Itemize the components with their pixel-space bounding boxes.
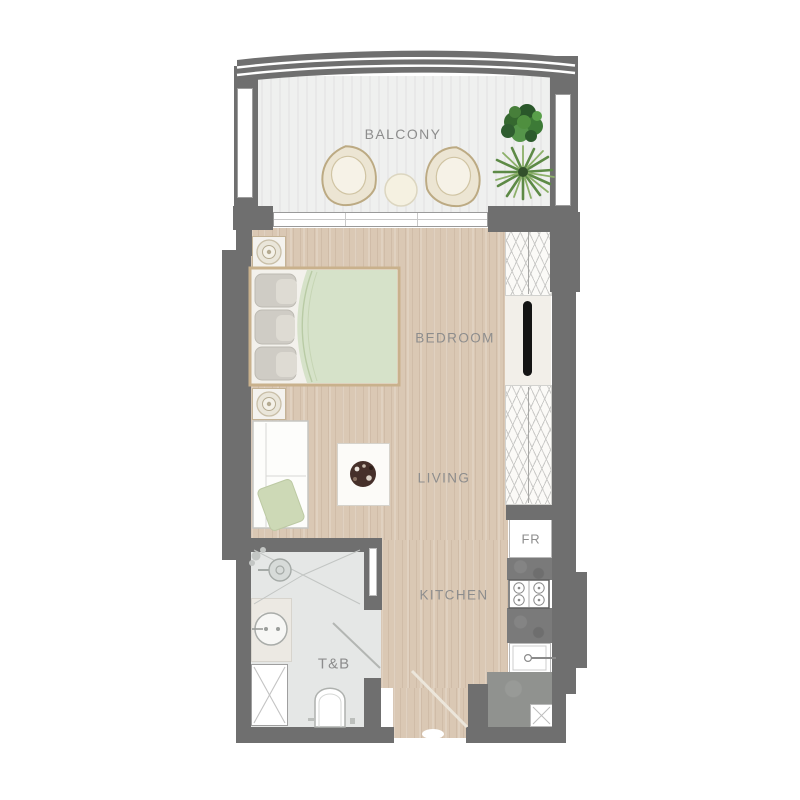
sliding-door-divider-2 <box>417 213 418 226</box>
service-shaft <box>251 664 288 726</box>
tb-north-wall <box>251 538 382 552</box>
floor-plan: BALCONY BEDROOM LIVING KITCHEN T&B FR <box>0 0 800 800</box>
nightstand-north <box>252 236 286 268</box>
kitchen-counter-2 <box>507 608 552 643</box>
east-wall-upper <box>550 212 580 292</box>
kitchen-counter-1 <box>507 558 552 580</box>
utility-box <box>530 704 553 727</box>
sliding-door-track <box>274 219 487 220</box>
west-pilaster <box>222 250 251 560</box>
south-wall-left <box>236 727 394 743</box>
tb-east-wall-lower <box>364 678 381 728</box>
coffee-table <box>337 443 390 506</box>
kitchen-label: KITCHEN <box>419 588 488 603</box>
balcony-window-left <box>237 88 253 198</box>
toilet-bath-label: T&B <box>318 656 350 673</box>
fridge-label: FR <box>522 532 541 547</box>
closet-base-wall <box>506 505 552 520</box>
west-wall-lower <box>236 542 251 742</box>
bathroom-vanity <box>251 598 292 662</box>
east-wall-bump <box>574 572 587 668</box>
kitchen-floor <box>381 540 508 688</box>
wardrobe-rod-lower <box>528 387 529 503</box>
bedroom-label: BEDROOM <box>415 331 495 346</box>
sliding-door-divider-1 <box>345 213 346 226</box>
door-stub-right <box>488 206 552 232</box>
cooktop <box>509 580 549 608</box>
west-wall-upper <box>236 206 252 256</box>
wardrobe-rod-upper <box>528 232 529 294</box>
living-label: LIVING <box>418 471 471 486</box>
entry-stub <box>468 684 488 728</box>
nightstand-south <box>252 388 286 420</box>
balcony-label: BALCONY <box>365 126 442 142</box>
east-wall-kitchen <box>552 520 576 694</box>
kitchen-sink-box <box>509 643 551 674</box>
tb-door-jamb-niche <box>369 548 377 596</box>
south-wall-right <box>466 727 566 743</box>
balcony-window-right <box>555 94 571 206</box>
balcony-floor <box>252 76 554 214</box>
east-wall-mid <box>552 292 576 520</box>
east-wall-lower <box>552 694 566 742</box>
tv-panel <box>523 301 532 376</box>
